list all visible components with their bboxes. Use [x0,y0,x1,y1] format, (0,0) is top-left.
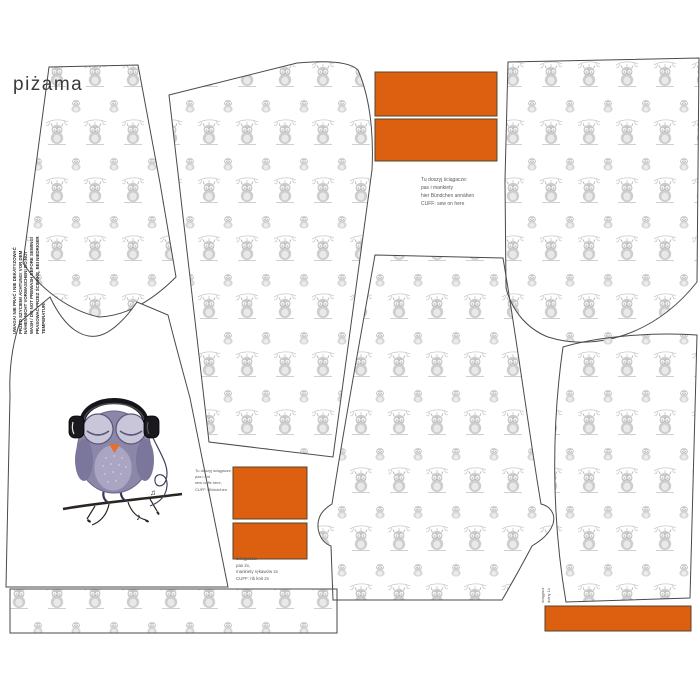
care-instructions-text: UWAGA! NIE PRAĆ I NIE DEKATYZOWAĆ PRZED … [12,128,46,334]
music-note-glyph: ♪ [136,512,141,523]
rib-cuff-rect-1 [375,72,497,116]
rib-cuff-rect-2 [375,119,497,161]
panel-artwork: ♪ ♫ [0,0,700,700]
music-note-glyph: ♫ [150,488,156,497]
cuff-note-side: ściągacz dolny 1x [540,579,551,603]
cuff-note-bottom: Ściągacze: pas 2x, mankiety rękawów 2x C… [236,556,298,582]
pajama-sewing-panel: ♪ ♫ [0,0,700,700]
piece-sleeve-upper [505,58,699,342]
rib-cuff-rect-3 [233,467,307,519]
piece-sleeve-lower [555,334,697,602]
rib-waistband-strip [545,606,691,631]
cuff-note-middle: Tu doszyj ściągacze, pas i dół sew cuffs… [195,468,232,493]
rib-cuff-rect-4 [233,523,307,559]
cuff-note-top: Tu doszyj ściągacze: pas i mankiety hier… [421,176,499,208]
piece-hem-band [10,589,337,633]
panel-title: piżama [13,74,83,96]
piece-pants-front [169,62,372,457]
